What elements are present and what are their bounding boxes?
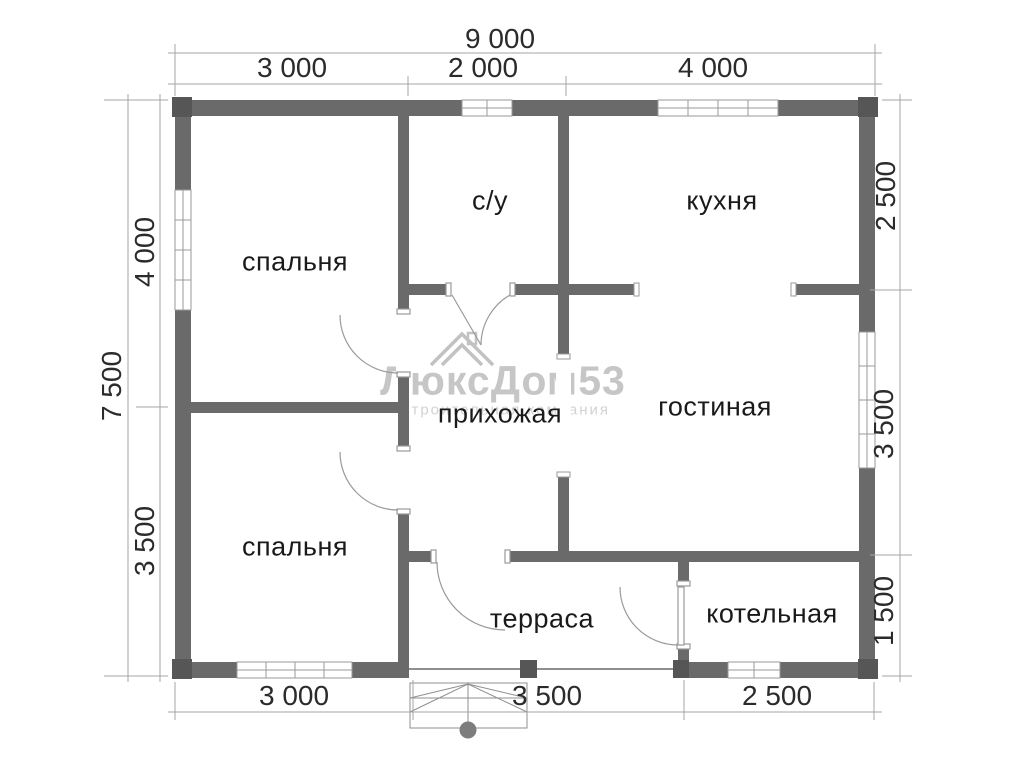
room-label-bedroom-2: спальня [242, 532, 348, 563]
passage-kitchen-living [634, 282, 796, 297]
dim-right-seg-2: 3 500 [868, 389, 900, 459]
entrance-steps [410, 683, 527, 739]
wall-hallway-left [398, 116, 409, 662]
dim-left-seg-1: 4 000 [129, 217, 161, 287]
window-bathroom-top [462, 100, 512, 116]
plan-drawing [0, 0, 1010, 758]
dim-right-seg-1: 2 500 [870, 161, 902, 231]
dim-left-total: 7 500 [96, 351, 128, 421]
walls [175, 100, 875, 678]
dim-bottom-seg-2: 3 500 [512, 680, 582, 712]
door-boiler [620, 581, 691, 649]
dim-bottom-seg-1: 3 000 [259, 680, 329, 712]
room-label-boiler-room: котельная [706, 599, 838, 630]
room-label-bedroom-1: спальня [242, 247, 348, 278]
floor-plan: ЛюксДом53 строительная компания [0, 0, 1010, 758]
room-label-living-room: гостиная [658, 392, 772, 423]
window-bedroom1-left [175, 190, 191, 310]
door-bedroom1 [340, 309, 411, 377]
wall-bathroom-bottom [409, 284, 638, 295]
corner-posts [172, 97, 878, 679]
window-bedroom2-bottom [237, 662, 352, 678]
door-bathroom [446, 282, 515, 345]
passages [556, 282, 796, 477]
terrace-post [673, 660, 689, 678]
terrace-post [520, 660, 537, 678]
wall-hallway-right [558, 116, 569, 562]
wall-kitchen-living-stub [792, 284, 859, 295]
wall-bedroom-divider [191, 402, 398, 413]
dim-right-seg-3: 1 500 [868, 576, 900, 646]
terrace-railing [409, 660, 689, 679]
dim-bottom-seg-3: 2 500 [742, 680, 812, 712]
doors [340, 282, 691, 649]
dim-top-seg-2: 2 000 [448, 52, 518, 84]
window-kitchen-top [658, 100, 778, 116]
dim-top-seg-1: 3 000 [257, 52, 327, 84]
window-boiler-bottom [728, 662, 780, 678]
windows [175, 100, 875, 678]
room-label-hallway: прихожая [438, 399, 562, 430]
house-roof-icon [431, 333, 493, 365]
room-label-terrace: терраса [490, 604, 594, 635]
dim-top-seg-3: 4 000 [678, 52, 748, 84]
outer-wall-left [175, 100, 191, 678]
dim-top-total: 9 000 [465, 23, 535, 55]
room-label-bathroom: с/у [472, 186, 508, 217]
entrance-marker [460, 722, 477, 739]
door-bedroom2 [340, 446, 411, 514]
dim-left-seg-2: 3 500 [129, 506, 161, 576]
room-label-kitchen: кухня [686, 186, 757, 217]
